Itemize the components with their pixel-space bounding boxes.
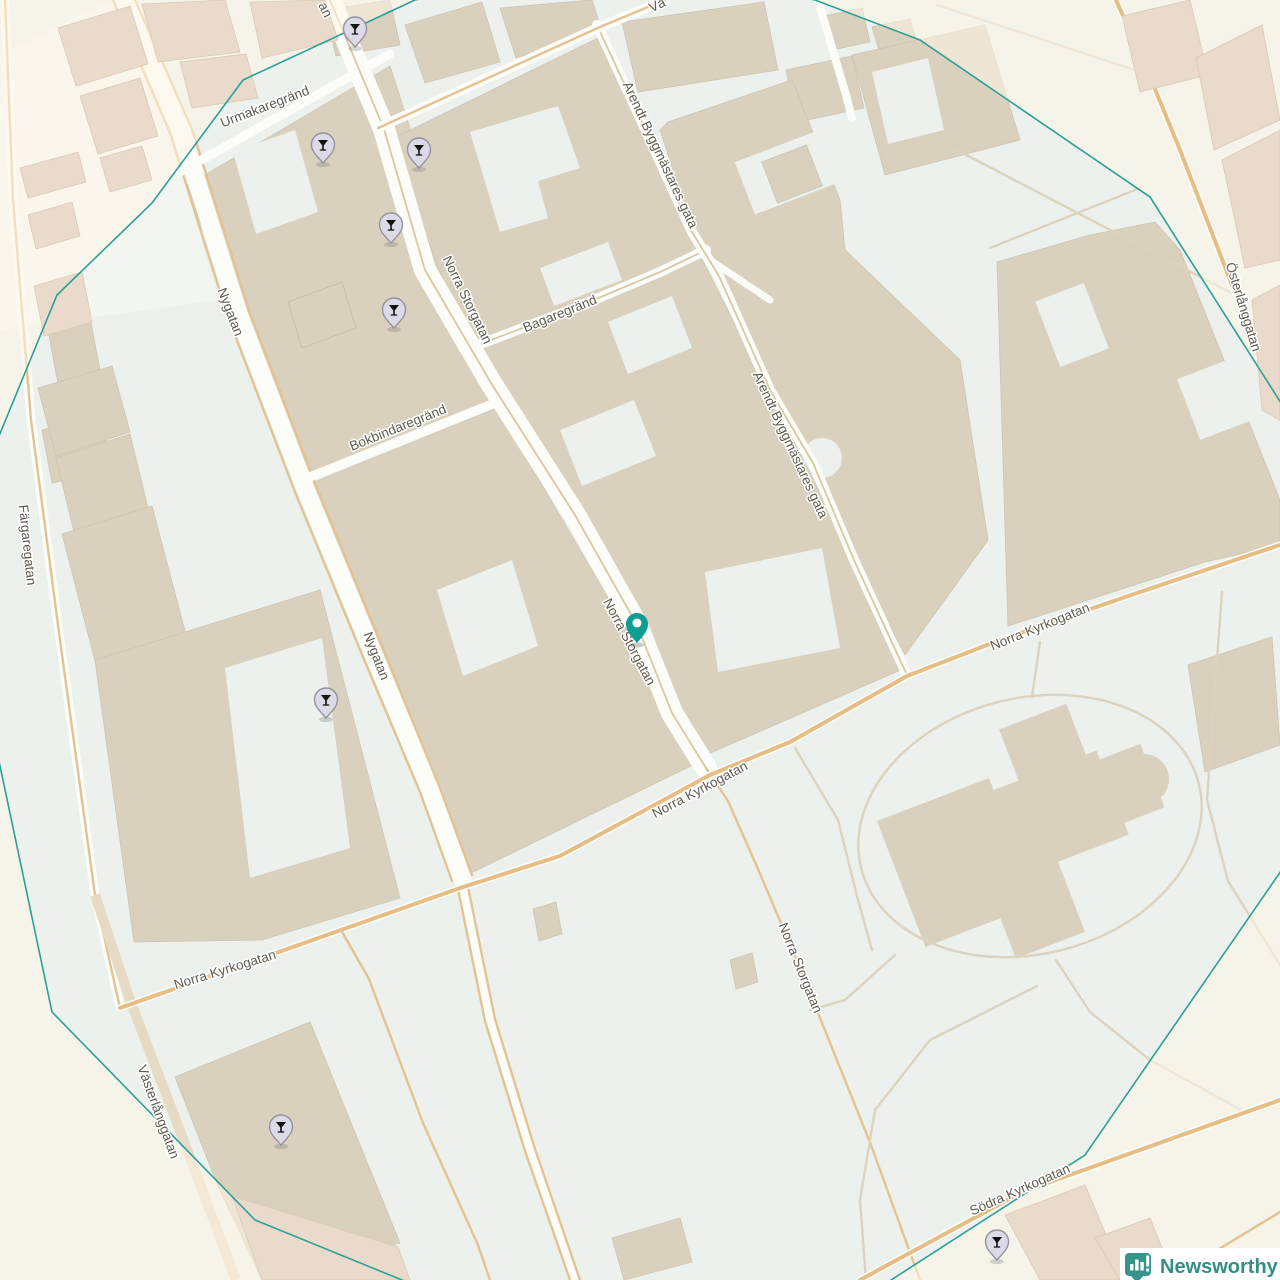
- svg-text:Newsworthy: Newsworthy: [1160, 1256, 1279, 1278]
